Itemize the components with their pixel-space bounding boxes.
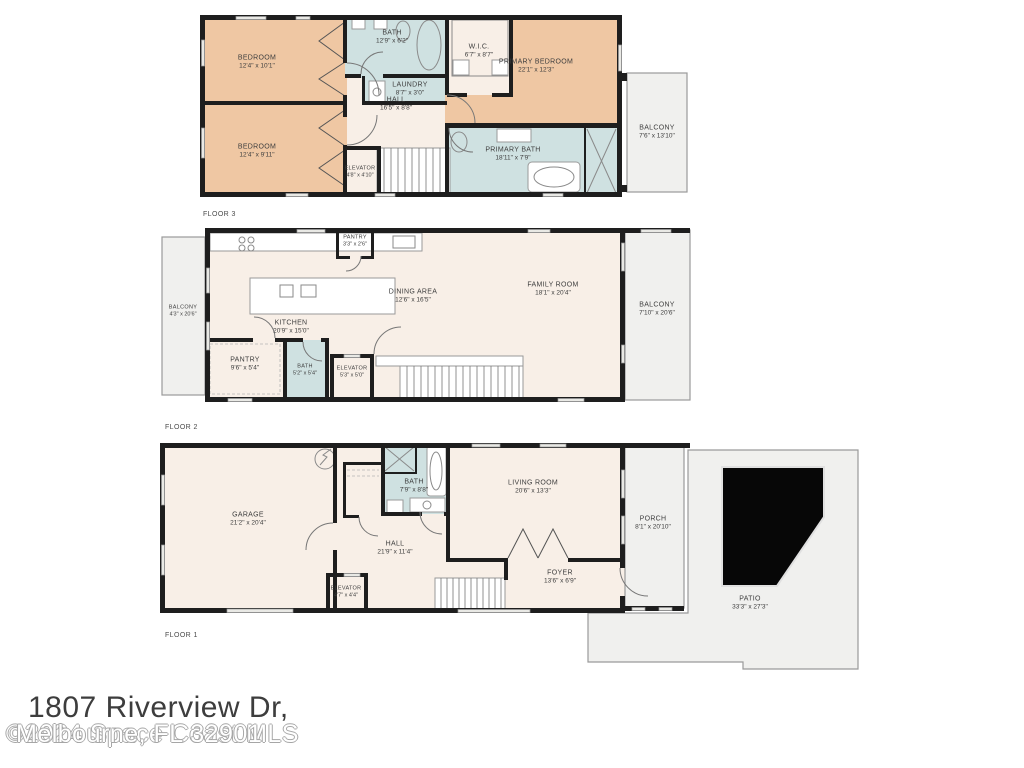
room-dims: 3'3" x 2'6" bbox=[343, 242, 367, 248]
room-name: FOYER bbox=[547, 570, 573, 577]
room-dims: 7'9" x 8'8" bbox=[400, 487, 428, 494]
floor3-plan bbox=[200, 15, 687, 197]
room-dims: 12'6" x 16'5" bbox=[395, 297, 431, 304]
room-label-pantry: PANTRY 9'6" x 5'4" bbox=[230, 357, 260, 372]
floor2-tag: FLOOR 2 bbox=[165, 424, 198, 431]
room-label-primary-bedroom: PRIMARY BEDROOM 22'1" x 12'3" bbox=[499, 59, 573, 74]
room-name: PRIMARY BEDROOM bbox=[499, 59, 573, 66]
room-dims: 22'1" x 12'3" bbox=[518, 67, 554, 74]
room-name: PORCH bbox=[640, 516, 667, 523]
room-name: PRIMARY BATH bbox=[485, 147, 540, 154]
watermark-city: Melbourne, FL 32901 bbox=[16, 720, 262, 749]
room-label-balcony-right: BALCONY 7'10" x 20'6" bbox=[639, 302, 675, 317]
room-name: BATH bbox=[382, 30, 401, 37]
floor3-stairs bbox=[377, 148, 450, 195]
room-dims: 12'9" x 6'2" bbox=[376, 38, 408, 45]
room-label-bedroom-2: BEDROOM 12'4" x 9'11" bbox=[238, 144, 276, 159]
room-name: PATIO bbox=[739, 596, 760, 603]
room-label-garage: GARAGE 21'2" x 20'4" bbox=[230, 512, 266, 527]
room-name: KITCHEN bbox=[275, 320, 308, 327]
room-name: W.I.C. bbox=[469, 44, 490, 51]
room-label-dining-area: DINING AREA 12'6" x 16'5" bbox=[389, 289, 437, 304]
room-name: DINING AREA bbox=[389, 289, 437, 296]
room-label-family-room: FAMILY ROOM 18'1" x 20'4" bbox=[527, 282, 578, 297]
room-label-kitchen: KITCHEN 20'9" x 15'0" bbox=[273, 320, 309, 335]
room-label-bath-f3: BATH 12'9" x 6'2" bbox=[376, 30, 408, 45]
room-name: FAMILY ROOM bbox=[527, 282, 578, 289]
room-label-hall-f3: HALL 16'5" x 8'8" bbox=[380, 97, 412, 112]
room-name: LAUNDRY bbox=[392, 82, 427, 89]
room-label-elevator-f1: ELEVATOR 4'7" x 4'4" bbox=[331, 586, 362, 599]
room-dims: 4'7" x 4'4" bbox=[334, 593, 358, 599]
room-name: BALCONY bbox=[639, 125, 675, 132]
floor1-room-fills bbox=[160, 443, 684, 613]
room-label-bedroom-1: BEDROOM 12'4" x 10'1" bbox=[238, 55, 276, 70]
room-dims: 6'7" x 8'7" bbox=[465, 52, 493, 59]
room-name: BEDROOM bbox=[238, 55, 276, 62]
room-label-wic: W.I.C. 6'7" x 8'7" bbox=[465, 44, 493, 59]
floor2-plan bbox=[162, 228, 690, 402]
room-dims: 13'6" x 6'9" bbox=[544, 578, 576, 585]
room-label-hall-f1: HALL 21'9" x 11'4" bbox=[377, 541, 412, 556]
room-label-patio: PATIO 33'3" x 27'3" bbox=[732, 596, 768, 611]
room-name: PANTRY bbox=[343, 235, 367, 241]
room-name: HALL bbox=[387, 97, 406, 104]
room-name: PANTRY bbox=[230, 357, 260, 364]
room-name: ELEVATOR bbox=[331, 586, 362, 592]
room-name: BATH bbox=[297, 364, 312, 370]
room-dims: 18'11" x 7'9" bbox=[495, 155, 530, 162]
room-dims: 33'3" x 27'3" bbox=[732, 604, 768, 611]
room-dims: 12'4" x 9'11" bbox=[239, 152, 274, 159]
room-name: BALCONY bbox=[169, 305, 197, 311]
room-name: BEDROOM bbox=[238, 144, 276, 151]
room-label-primary-bath: PRIMARY BATH 18'11" x 7'9" bbox=[485, 147, 540, 162]
room-dims: 9'6" x 5'4" bbox=[231, 365, 259, 372]
room-dims: 16'5" x 8'8" bbox=[380, 105, 412, 112]
room-name: ELEVATOR bbox=[337, 366, 368, 372]
room-label-foyer: FOYER 13'6" x 6'9" bbox=[544, 570, 576, 585]
room-dims: 7'6" x 13'10" bbox=[639, 133, 675, 140]
floorplan-page: FLOOR 3 FLOOR 2 FLOOR 1 BEDROOM 12'4" x … bbox=[0, 0, 1024, 768]
floorplan-graphic bbox=[0, 0, 1024, 768]
room-label-balcony-left: BALCONY 4'3" x 20'6" bbox=[169, 305, 197, 318]
room-name: BATH bbox=[404, 479, 423, 486]
room-name: HALL bbox=[386, 541, 405, 548]
room-dims: 8'1" x 20'10" bbox=[635, 524, 671, 531]
room-dims: 12'4" x 10'1" bbox=[239, 63, 275, 70]
room-dims: 5'2" x 5'4" bbox=[293, 371, 317, 377]
room-label-bath-f2: BATH 5'2" x 5'4" bbox=[293, 364, 317, 377]
room-name: GARAGE bbox=[232, 512, 264, 519]
room-dims: 4'8" x 4'10" bbox=[346, 173, 373, 179]
floor1-stairs bbox=[435, 578, 505, 611]
room-label-elevator-f3: ELEVATOR 4'8" x 4'10" bbox=[345, 166, 376, 179]
room-label-pantry-small: PANTRY 3'3" x 2'6" bbox=[343, 235, 367, 248]
room-dims: 20'6" x 13'3" bbox=[515, 488, 551, 495]
room-label-living-room: LIVING ROOM 20'6" x 13'3" bbox=[508, 480, 558, 495]
floor3-tag: FLOOR 3 bbox=[203, 211, 236, 218]
room-name: ELEVATOR bbox=[345, 166, 376, 172]
room-label-balcony-f3: BALCONY 7'6" x 13'10" bbox=[639, 125, 675, 140]
room-dims: 7'10" x 20'6" bbox=[639, 310, 675, 317]
room-name: BALCONY bbox=[639, 302, 675, 309]
room-label-laundry: LAUNDRY 8'7" x 3'0" bbox=[392, 82, 427, 97]
room-dims: 20'9" x 15'0" bbox=[273, 328, 309, 335]
room-dims: 18'1" x 20'4" bbox=[535, 290, 571, 297]
floor1-tag: FLOOR 1 bbox=[165, 632, 198, 639]
garage-door bbox=[227, 609, 293, 613]
room-name: LIVING ROOM bbox=[508, 480, 558, 487]
room-dims: 21'2" x 20'4" bbox=[230, 520, 266, 527]
room-dims: 4'3" x 20'6" bbox=[169, 312, 196, 318]
floor1-plan bbox=[160, 443, 858, 669]
room-dims: 8'7" x 3'0" bbox=[396, 90, 424, 97]
room-label-porch: PORCH 8'1" x 20'10" bbox=[635, 516, 671, 531]
room-label-elevator-f2: ELEVATOR 5'3" x 5'0" bbox=[337, 366, 368, 379]
room-dims: 5'3" x 5'0" bbox=[340, 373, 364, 379]
kitchen-island bbox=[250, 278, 395, 314]
room-label-bath-f1: BATH 7'9" x 8'8" bbox=[400, 479, 428, 494]
room-dims: 21'9" x 11'4" bbox=[377, 549, 412, 556]
